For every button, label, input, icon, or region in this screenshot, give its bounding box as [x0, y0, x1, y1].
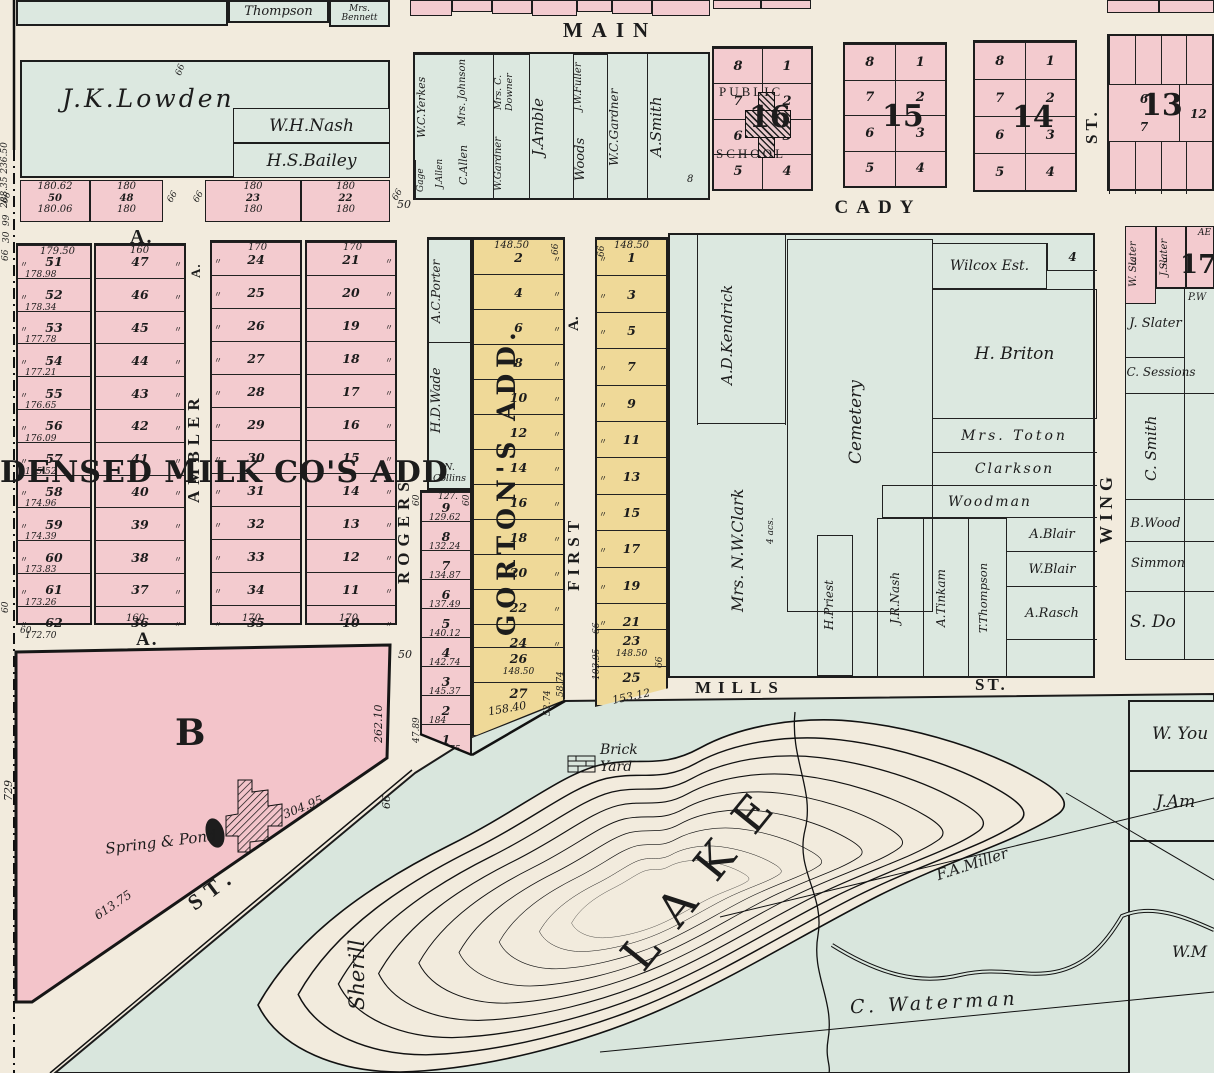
kendrick-parcel: A.D.Kendrick	[718, 249, 744, 421]
lot-50: 180.62 50 180.06	[20, 180, 90, 222]
measure-66: 66	[655, 652, 665, 672]
johnson-parcel: Mrs. Johnson	[457, 54, 494, 129]
top-sliver	[761, 0, 811, 9]
block13-bottom-row	[1109, 141, 1212, 194]
top-sliver	[1107, 0, 1159, 13]
divider	[697, 235, 698, 425]
lot-row: 18 〃	[307, 341, 395, 374]
measure-66: 66	[551, 240, 561, 258]
mills-street-label: MILLS	[695, 678, 785, 698]
lot-row: 38 〃	[96, 540, 184, 573]
lot-row: 〃 9	[597, 385, 666, 421]
lot-row: 39 〃	[96, 507, 184, 540]
lot-column-3: 〃 24 〃 25 〃 26 〃 27 〃 28 〃 29 〃 30 〃 31 …	[210, 240, 302, 625]
ditto-mark: 〃	[20, 390, 28, 401]
ae-fragment: AE	[1198, 228, 1211, 238]
wblair-label: W.Blair	[1028, 562, 1075, 577]
ditto-mark: 〃	[174, 587, 182, 598]
tthompson-parcel: T.Thompson	[969, 518, 1007, 678]
col1-rows: 〃 51 178.98 〃 52 178.34 〃 53 177.78 〃 54…	[18, 245, 90, 623]
lot-row: 〃 15	[597, 494, 666, 530]
toton-parcel: Mrs. Toton	[932, 419, 1097, 453]
ditto-mark: 〃	[553, 289, 561, 300]
measure-50: 50	[398, 648, 412, 661]
measure-103-95: 103.95	[592, 646, 602, 682]
lot-row: 45 〃	[96, 311, 184, 344]
lot-measure: 177.21	[25, 368, 57, 378]
cemetery-parcel: Cemetery	[787, 239, 933, 612]
ditto-mark: 〃	[553, 394, 561, 405]
a-street-bottom-label: A.	[136, 629, 158, 651]
top-sliver	[492, 0, 532, 14]
simmon-label: Simmon	[1128, 556, 1188, 571]
lot-number: 8	[714, 49, 762, 83]
school-label: SCHOOL	[716, 146, 786, 162]
main-street-label: MAIN	[540, 18, 680, 43]
lot-row: 〃 53 177.78	[18, 311, 90, 344]
lot-row: 〃 56 176.09	[18, 409, 90, 442]
woods-parcel: Woods	[573, 119, 608, 200]
cady-street-label: CADY	[818, 197, 938, 219]
lot-row: 7 134.87	[422, 550, 470, 579]
lot-23: 180 23 180	[205, 180, 301, 222]
lot-number: 62	[45, 615, 62, 630]
lot-number: 11	[342, 582, 359, 597]
lot-row: 3 145.37	[422, 666, 470, 695]
lot-number	[1135, 142, 1161, 194]
lot-number: 32	[247, 516, 264, 531]
lot-number: 1	[762, 49, 811, 83]
lot-row: 〃 33	[212, 539, 300, 572]
ditto-mark: 〃	[599, 473, 607, 484]
ditto-mark: 〃	[599, 509, 607, 520]
bennett-parcel: Mrs. Bennett	[329, 0, 390, 27]
lot-meas: 180.06	[38, 204, 73, 215]
ditto-mark: 〃	[385, 256, 393, 267]
ditto-mark: 〃	[214, 586, 222, 597]
lot-12: 12	[1179, 84, 1214, 142]
lot-number: 1	[895, 45, 946, 80]
sdo-label: S. Do	[1130, 612, 1200, 632]
lot-row: 〃 13	[597, 457, 666, 493]
lot-row: 44 〃	[96, 343, 184, 376]
block-16: 8 1 7 2 6 3 5 4 PUBLIC SCHOOL 16	[712, 46, 813, 191]
clark-parcel: Mrs. N.W.Clark	[728, 430, 756, 670]
lot-number: 27	[247, 351, 264, 366]
csmith-label: C. Smith	[1142, 398, 1168, 498]
edge-measure: 99	[2, 212, 12, 228]
lot-meas: 180	[336, 204, 355, 215]
ditto-mark: 〃	[553, 324, 561, 335]
ditto-mark: 〃	[385, 619, 393, 630]
fuller-parcel: J.W.Fuller	[573, 54, 608, 119]
lot-row: 〃 7	[597, 348, 666, 384]
lot-48: 180 48 180	[90, 180, 163, 222]
lot-number: 38	[131, 550, 148, 565]
lot-number: 52	[45, 287, 62, 302]
block13-number: 13	[1141, 88, 1183, 123]
ditto-mark: 〃	[385, 388, 393, 399]
ditto-mark: 〃	[174, 324, 182, 335]
wgardner-parcel: W.Gardner	[493, 129, 530, 200]
lot-number: 5	[627, 323, 636, 338]
ditto-mark: 〃	[174, 357, 182, 368]
lot-row: 2 184	[422, 695, 470, 724]
measure-58-74: 58.74	[556, 668, 566, 700]
ditto-mark: 〃	[599, 363, 607, 374]
ditto-mark: 〃	[174, 619, 182, 630]
briton-label: H. Briton	[975, 344, 1055, 364]
first-a-label: A.	[566, 306, 586, 342]
ditto-mark: 〃	[385, 289, 393, 300]
lot-number	[1161, 142, 1187, 194]
st-label-13-14: ST.	[1082, 95, 1104, 157]
wing-street-label: WING	[1096, 420, 1122, 595]
tinkam-label: A.Tinkam	[934, 527, 958, 669]
lot-row: 〃 19	[597, 567, 666, 603]
lot-number: 50	[48, 193, 62, 204]
lot-column-1: 〃 51 178.98 〃 52 178.34 〃 53 177.78 〃 54…	[16, 243, 92, 625]
lot-number: 5	[845, 152, 895, 187]
lot-number: 16	[342, 417, 359, 432]
measure-66: 66	[380, 790, 393, 814]
lot-row: 12 〃	[307, 539, 395, 572]
gortons-add-label: GORTON'S ADD.	[492, 255, 522, 707]
lot-number: 22	[339, 193, 353, 204]
wm-label: W.M	[1172, 942, 1207, 961]
lot-number: 28	[247, 384, 264, 399]
ditto-mark: 〃	[214, 553, 222, 564]
amble-parcel: J.Amble	[529, 54, 574, 200]
ditto-mark: 〃	[214, 355, 222, 366]
meas-50: 50	[397, 198, 411, 211]
ditto-mark: 〃	[553, 464, 561, 475]
divider	[1184, 289, 1185, 659]
porter-parcel: A.C.Porter	[429, 239, 470, 342]
ditto-mark: 〃	[599, 400, 607, 411]
lot-number: 1	[627, 250, 636, 265]
measure-47-89: 47.89	[412, 712, 422, 748]
jam-parcel: J.Am	[1128, 772, 1214, 842]
public-label: PUBLIC	[719, 84, 783, 100]
block-row: 8 1	[845, 44, 945, 80]
bailey-label: H.S.Bailey	[267, 151, 357, 171]
ditto-mark: 〃	[20, 324, 28, 335]
nash-parcel: W.H.Nash	[233, 108, 390, 143]
a-street-top-label: A.	[130, 226, 153, 249]
ditto-mark: 〃	[174, 554, 182, 565]
lot-number: 60	[45, 550, 62, 565]
ablair-parcel: A.Blair	[1007, 518, 1097, 552]
lot-number: 42	[131, 418, 148, 433]
ditto-mark: 〃	[385, 586, 393, 597]
lot-row: 37 〃	[96, 573, 184, 606]
cemetery-label: Cemetery	[846, 272, 876, 572]
lot-row: 〃 28	[212, 374, 300, 407]
lot-measure: 142.74	[429, 658, 461, 668]
measure-66: 66	[597, 242, 607, 260]
lot-row: 〃 32	[212, 506, 300, 539]
lot-top-measure: 127.	[438, 492, 458, 502]
block13-top-row	[1109, 36, 1212, 84]
lot-measure: 184	[429, 716, 446, 726]
lot-number: 8	[975, 43, 1025, 79]
top-sliver	[532, 0, 577, 16]
ambler-a-label: A.	[188, 258, 206, 284]
divider	[1126, 541, 1214, 542]
lot-number: 23	[623, 633, 640, 648]
lot-row: 4 142.74	[422, 637, 470, 666]
lot-number: 18	[342, 351, 359, 366]
measure-262-10: 262.10	[372, 688, 385, 760]
ditto-mark: 〃	[214, 388, 222, 399]
col3-rows: 〃 24 〃 25 〃 26 〃 27 〃 28 〃 29 〃 30 〃 31 …	[212, 242, 300, 623]
lot-number: 25	[247, 285, 264, 300]
main-south-block: W.C.Yerkes Gage J.Allen Mrs. Johnson C.A…	[413, 52, 710, 200]
measure-729: 729	[2, 768, 15, 814]
lot-row: 16 〃	[307, 407, 395, 440]
lot-number: 11	[623, 432, 640, 447]
col4-rows: 21 〃 20 〃 19 〃 18 〃 17 〃 16 〃 15 〃 14 〃 …	[307, 242, 395, 623]
top-edge-block	[16, 0, 228, 26]
ditto-mark: 〃	[20, 587, 28, 598]
lot-number: 48	[120, 193, 134, 204]
lot-measure: 177.78	[25, 335, 57, 345]
divider	[697, 423, 785, 424]
ditto-mark: 〃	[174, 390, 182, 401]
ditto-mark: 〃	[599, 582, 607, 593]
lot-row: 〃 11	[597, 421, 666, 457]
ditto-mark: 〃	[214, 619, 222, 630]
edge-measure: 60	[1, 600, 11, 614]
lot-number: 7	[627, 359, 636, 374]
briton-parcel: H. Briton	[932, 289, 1097, 419]
lot-measure: 132.24	[429, 542, 461, 552]
strip2-lot-rows: 〃 1 〃 3 〃 5 〃 7 〃 9 〃 11 〃 13 〃 15 〃 17 …	[597, 239, 666, 629]
thompson-label: Thompson	[244, 4, 312, 19]
lot-number: 46	[131, 287, 148, 302]
lot-row: 19 〃	[307, 308, 395, 341]
strip2-top-measure: 148.50	[614, 240, 649, 251]
measure-52-74: 52.74	[543, 688, 553, 718]
edge-measure: 30	[2, 230, 12, 244]
lot-number: 15	[623, 505, 640, 520]
toton-label: Mrs. Toton	[961, 428, 1068, 444]
lot-22: 180 22 180	[301, 180, 390, 222]
lot-row: 17 〃	[307, 374, 395, 407]
lot-number	[1109, 142, 1135, 194]
ditto-mark: 〃	[553, 534, 561, 545]
ablair-label: A.Blair	[1029, 527, 1074, 542]
smith-lot-8: 8	[687, 174, 693, 185]
wslater-lot-3: 3	[1131, 258, 1137, 268]
lot-number: 13	[623, 469, 640, 484]
lot-number: 24	[247, 252, 264, 267]
lot-row: 〃 54 177.21	[18, 343, 90, 376]
col2-bottom-measure: 160	[126, 613, 145, 624]
first-street-label: FIRST	[564, 478, 588, 628]
ditto-mark: 〃	[20, 357, 28, 368]
wblair-parcel: W.Blair	[1007, 552, 1097, 587]
callen-parcel: C.Allen	[457, 129, 494, 200]
measure-60: 60	[412, 492, 422, 508]
ditto-mark: 〃	[385, 421, 393, 432]
nash-label: W.H.Nash	[269, 116, 354, 136]
lot-row: 〃 61 173.26	[18, 573, 90, 606]
col4-top-measure: 170	[343, 242, 362, 253]
lot-number: 34	[247, 582, 264, 597]
ditto-mark: 〃	[214, 322, 222, 333]
gage-parcel: Gage	[415, 160, 436, 200]
lot-number: 43	[131, 386, 148, 401]
bennett-label: Mrs. Bennett	[331, 5, 388, 23]
lot-number: 39	[131, 517, 148, 532]
lot-measure: 173.83	[25, 565, 57, 575]
lot-row: 〃 17	[597, 530, 666, 566]
bailey-parcel: H.S.Bailey	[233, 143, 390, 178]
ditto-mark: 〃	[553, 359, 561, 370]
lot-number: 45	[131, 320, 148, 335]
lot-number: 19	[623, 578, 640, 593]
ambler-street-label: AMBLER	[184, 330, 208, 565]
ditto-mark: 〃	[174, 259, 182, 270]
brick-label: Brick	[600, 742, 638, 758]
jallen-parcel: J.Allen	[435, 146, 457, 200]
clarkson-label: Clarkson	[975, 461, 1054, 477]
top-sliver	[1159, 0, 1214, 13]
estate-block: A.D.Kendrick Mrs. N.W.Clark 4 acs. Cemet…	[668, 233, 1095, 678]
lot-number	[1135, 36, 1161, 84]
lot-number	[1186, 142, 1212, 194]
lot-number: 25	[622, 671, 640, 686]
lot-meas: 180	[117, 204, 136, 215]
lot-number: 20	[342, 285, 359, 300]
ditto-mark: 〃	[599, 545, 607, 556]
ditto-mark: 〃	[214, 289, 222, 300]
milk-co-addition-label: DENSED MILK CO'S ADD	[0, 455, 408, 490]
lot-number: 53	[45, 320, 62, 335]
divider	[1126, 357, 1184, 358]
yerkes-parcel: W.C.Yerkes	[415, 54, 457, 159]
block16-number: 16	[749, 100, 791, 135]
block-b-label: B	[175, 712, 205, 754]
wyou-parcel: W. You	[1128, 700, 1214, 772]
lot-number: 33	[247, 549, 264, 564]
lot-row: 〃 25	[212, 275, 300, 308]
jslater2-label: J. Slater	[1128, 316, 1183, 331]
lot-column-4: 21 〃 20 〃 19 〃 18 〃 17 〃 16 〃 15 〃 14 〃 …	[305, 240, 397, 625]
lot-measure: 174.39	[25, 532, 57, 542]
porter-wade-strip: A.C.Porter H.D.Wade N. Collins	[427, 237, 472, 490]
block-13: 6 7 12 13	[1107, 34, 1214, 191]
ditto-mark: 〃	[20, 292, 28, 303]
bwood-label: B.Wood	[1128, 516, 1183, 531]
wilcox-label: Wilcox Est.	[950, 258, 1029, 274]
lot-meas: 180.62	[38, 181, 73, 192]
clark-acreage: 4 acs.	[766, 501, 782, 561]
lot-row: 43 〃	[96, 376, 184, 409]
lot-row: 5 140.12	[422, 608, 470, 637]
lot-number	[1109, 36, 1135, 84]
lot-number: 26	[247, 318, 264, 333]
ditto-mark: 〃	[214, 421, 222, 432]
top-sliver	[452, 0, 492, 12]
lot-row: 8 132.24	[422, 521, 470, 550]
ditto-mark: 〃	[385, 520, 393, 531]
lot-row: 〃 27	[212, 341, 300, 374]
gortons-strip-2: 〃 1 〃 3 〃 5 〃 7 〃 9 〃 11 〃 13 〃 15 〃 17 …	[595, 237, 668, 707]
lot-row: 〃 34	[212, 572, 300, 605]
lot-number: 21	[623, 614, 640, 629]
plat-map-page: { "streets":{"main":"MAIN","cady":"CADY"…	[0, 0, 1214, 1073]
lot-number	[1186, 36, 1212, 84]
lot-row: 〃 60 173.83	[18, 540, 90, 573]
yard-label: Yard	[600, 759, 632, 775]
lot-number: 54	[45, 353, 62, 368]
lot-4-parcel: 4	[1047, 243, 1097, 271]
lot-measure: 174.96	[25, 499, 57, 509]
sessions-label: C. Sessions	[1124, 365, 1198, 379]
lot-number: 56	[45, 418, 62, 433]
jslater-label: J.Slater	[1159, 229, 1179, 285]
lot-row: 〃 29	[212, 407, 300, 440]
col3-top-measure: 170	[248, 242, 267, 253]
lot-meas: 180	[336, 181, 355, 192]
woodman-label: Woodman	[948, 494, 1032, 510]
block-14: 8 1 7 2 6 3 5 4 14	[973, 40, 1077, 192]
ditto-mark: 〃	[553, 569, 561, 580]
lot-measure: 178.34	[25, 303, 57, 313]
ditto-mark: 〃	[214, 520, 222, 531]
lot-number: 12	[1190, 107, 1207, 121]
clarkson-parcel: Clarkson	[932, 453, 1097, 485]
lot-row: 〃 52 178.34	[18, 278, 90, 311]
lot-measure: 140.12	[429, 629, 461, 639]
lot-row: 〃 55 176.65	[18, 376, 90, 409]
lot-row: 46 〃	[96, 278, 184, 311]
rogers-pink-lots: 127. 9 129.62 8 132.24 7 134.87 6 137.49…	[420, 490, 472, 755]
ditto-mark: 〃	[20, 423, 28, 434]
lot-number: 37	[131, 582, 148, 597]
lot-measure: 137.49	[429, 600, 461, 610]
thompson-parcel: Thompson	[228, 0, 329, 23]
block15-number: 15	[882, 99, 924, 134]
ditto-mark: 〃	[553, 429, 561, 440]
wslater-parcel: W. Slater	[1125, 226, 1156, 304]
ditto-mark: 〃	[20, 259, 28, 270]
edge-measure: 288.35 236.50	[0, 146, 10, 208]
col4-bottom-measure: 170	[339, 613, 358, 624]
divider	[1126, 499, 1214, 500]
lowden-label: J.K.Lowden	[62, 84, 235, 113]
block17-number: 17	[1180, 250, 1214, 280]
lot-measure: 134.87	[429, 571, 461, 581]
lot-row: 〃 26	[212, 308, 300, 341]
ditto-mark: 〃	[20, 521, 28, 532]
ditto-mark: 〃	[385, 553, 393, 564]
block-row: 8 1	[714, 48, 811, 83]
divider	[1126, 393, 1214, 394]
block-row: 5 4	[975, 153, 1075, 190]
lot-row: 42 〃	[96, 409, 184, 442]
top-sliver	[612, 0, 652, 14]
ditto-mark: 〃	[599, 291, 607, 302]
ditto-mark: 〃	[174, 292, 182, 303]
lot-row: 〃 3	[597, 275, 666, 311]
measure-60: 60	[462, 492, 472, 508]
far-right-green-column	[1125, 288, 1214, 660]
lot-number: 21	[342, 252, 359, 267]
